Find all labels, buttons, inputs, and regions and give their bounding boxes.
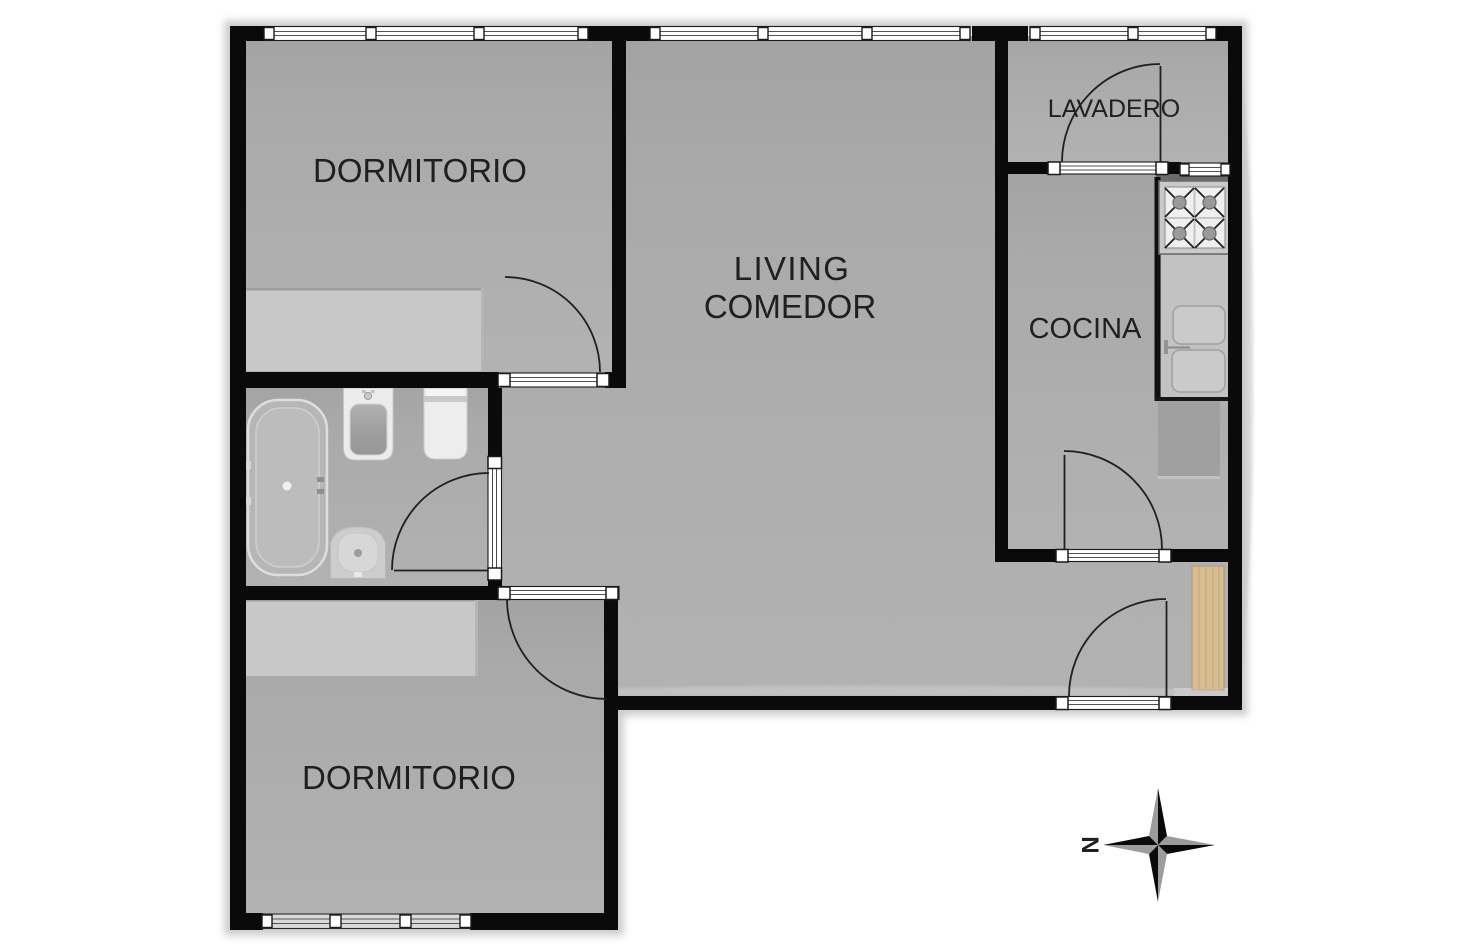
svg-text:COMEDOR: COMEDOR [704,288,876,325]
svg-text:DORMITORIO: DORMITORIO [313,152,527,189]
svg-text:LIVING: LIVING [734,250,851,287]
svg-text:COCINA: COCINA [1029,313,1142,345]
svg-text:N: N [1078,836,1105,853]
svg-text:LAVADERO: LAVADERO [1048,95,1180,123]
svg-text:DORMITORIO: DORMITORIO [302,759,516,796]
